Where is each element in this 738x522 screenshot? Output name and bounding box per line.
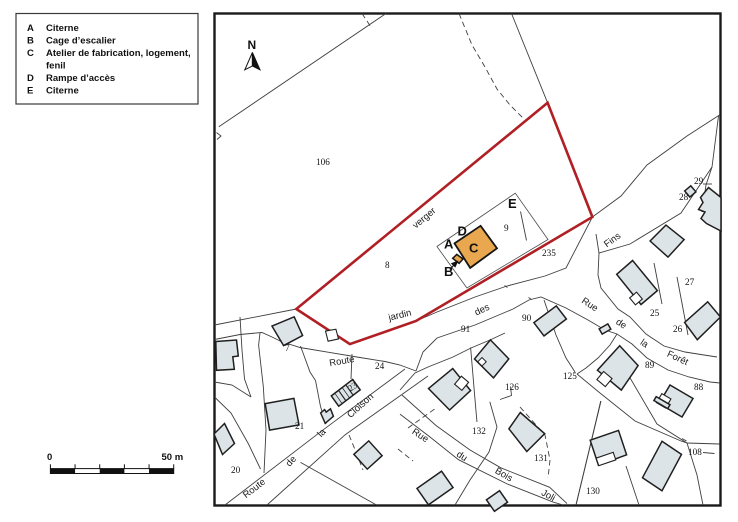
svg-text:A: A xyxy=(27,23,34,34)
svg-text:N: N xyxy=(248,38,257,52)
svg-text:108: 108 xyxy=(688,447,702,457)
svg-text:21: 21 xyxy=(295,421,305,431)
svg-text:90: 90 xyxy=(522,313,532,323)
svg-text:Citerne: Citerne xyxy=(46,23,79,34)
svg-text:C: C xyxy=(469,241,479,256)
svg-text:D: D xyxy=(458,224,467,239)
svg-text:B: B xyxy=(27,36,34,47)
svg-text:89: 89 xyxy=(645,360,655,370)
svg-text:25: 25 xyxy=(650,308,660,318)
svg-text:fenil: fenil xyxy=(46,61,66,72)
svg-text:88: 88 xyxy=(694,382,704,392)
svg-text:C: C xyxy=(27,48,34,59)
svg-text:Cage d’escalier: Cage d’escalier xyxy=(46,36,116,47)
svg-text:7: 7 xyxy=(285,343,290,353)
svg-text:D: D xyxy=(27,73,34,84)
svg-text:0: 0 xyxy=(47,452,52,463)
svg-text:Atelier de fabrication, logeme: Atelier de fabrication, logement, xyxy=(46,48,191,59)
svg-text:A: A xyxy=(444,237,454,252)
svg-text:126: 126 xyxy=(505,382,519,392)
svg-text:9: 9 xyxy=(504,223,509,233)
svg-text:125: 125 xyxy=(563,371,577,381)
svg-text:132: 132 xyxy=(472,426,486,436)
svg-text:8: 8 xyxy=(385,260,390,270)
svg-text:20: 20 xyxy=(231,465,241,475)
svg-text:106: 106 xyxy=(316,157,330,167)
svg-text:131: 131 xyxy=(534,453,548,463)
svg-text:E: E xyxy=(508,196,517,211)
svg-text:91: 91 xyxy=(461,324,471,334)
svg-text:50 m: 50 m xyxy=(162,452,184,463)
svg-text:27: 27 xyxy=(685,277,695,287)
svg-text:Citerne: Citerne xyxy=(46,86,79,97)
svg-text:235: 235 xyxy=(542,248,556,258)
svg-text:130: 130 xyxy=(586,486,600,496)
svg-text:24: 24 xyxy=(375,361,385,371)
svg-text:B: B xyxy=(444,264,453,279)
svg-text:29: 29 xyxy=(694,176,704,186)
svg-text:Rampe d’accès: Rampe d’accès xyxy=(46,73,115,84)
svg-text:E: E xyxy=(27,86,33,97)
svg-text:28: 28 xyxy=(679,192,689,202)
svg-text:26: 26 xyxy=(673,324,683,334)
